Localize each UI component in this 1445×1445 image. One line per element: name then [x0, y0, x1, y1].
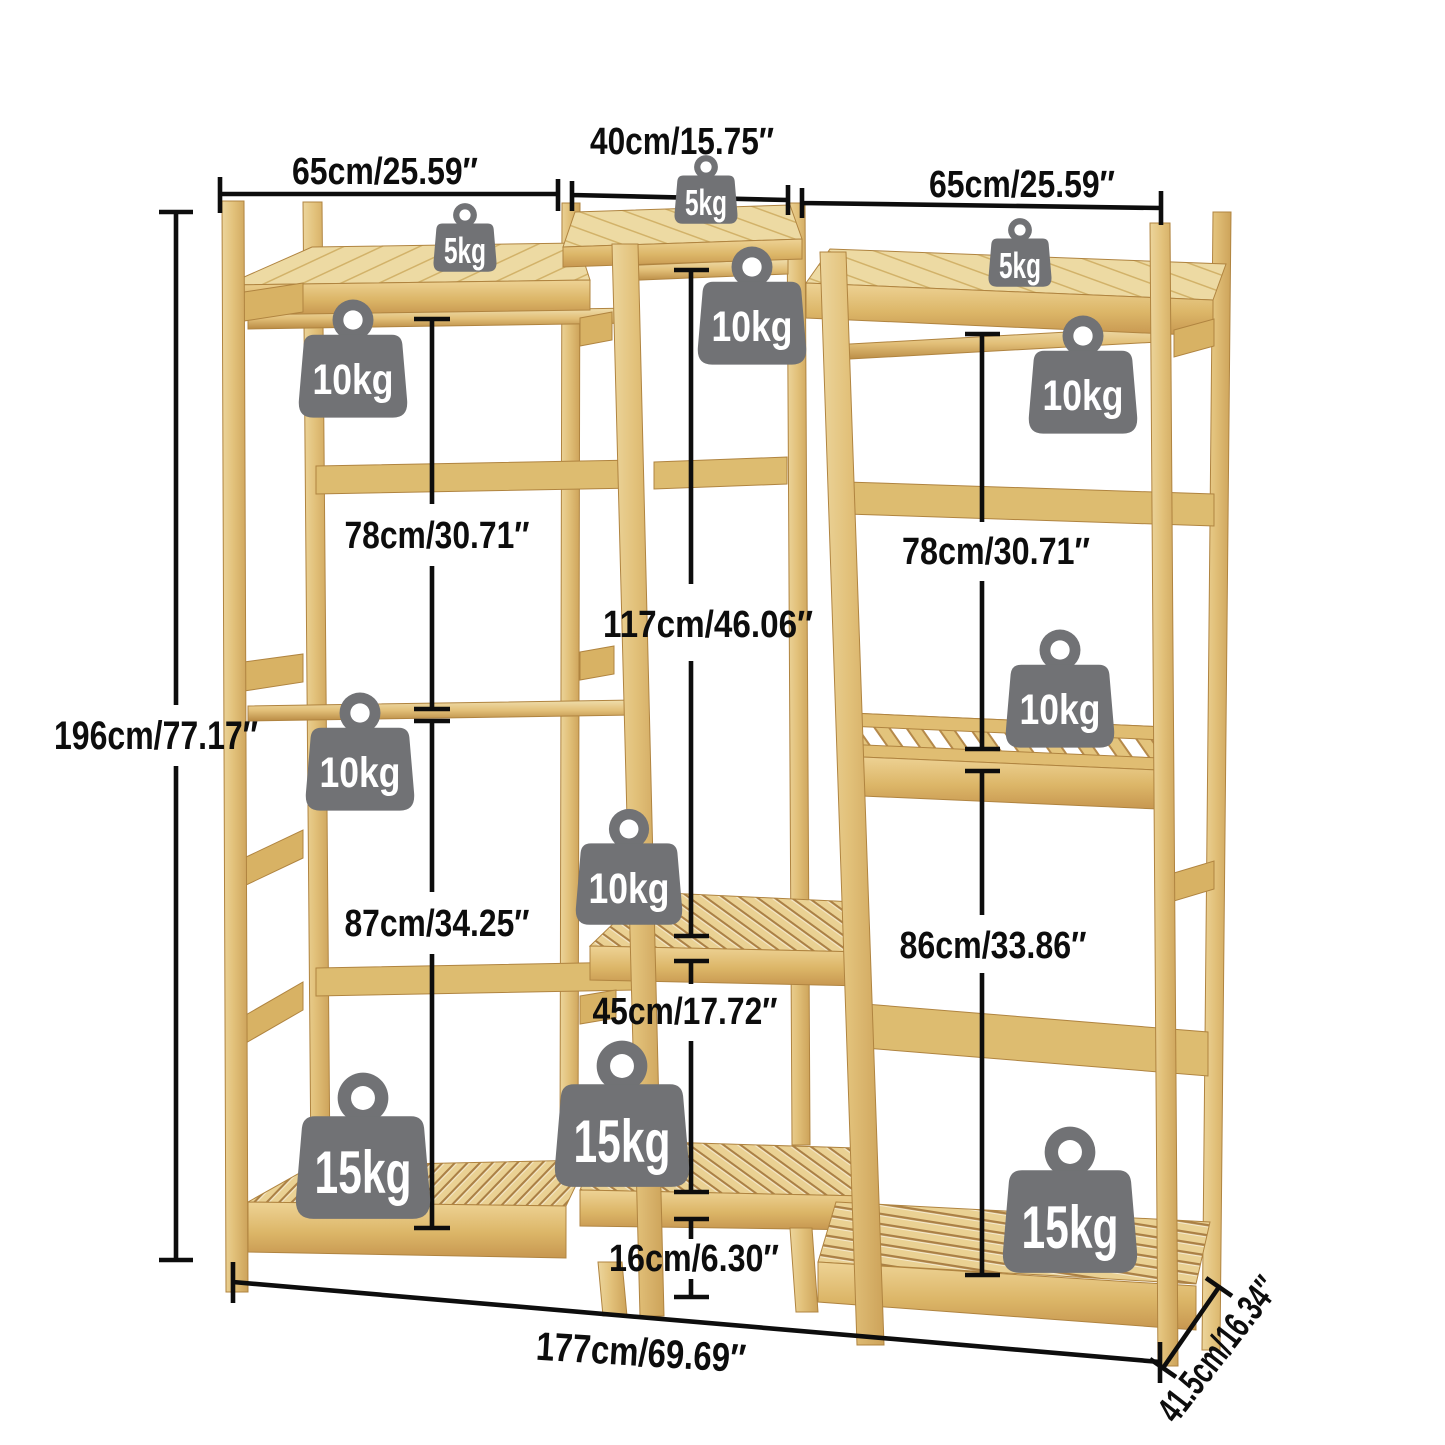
- svg-text:65cm/25.59″: 65cm/25.59″: [292, 151, 478, 193]
- svg-text:87cm/34.25″: 87cm/34.25″: [345, 903, 530, 945]
- svg-text:15kg: 15kg: [1022, 1194, 1119, 1261]
- svg-text:10kg: 10kg: [589, 865, 670, 913]
- svg-text:10kg: 10kg: [712, 303, 793, 351]
- svg-text:65cm/25.59″: 65cm/25.59″: [929, 164, 1115, 206]
- svg-text:16cm/6.30″: 16cm/6.30″: [609, 1238, 779, 1280]
- svg-text:78cm/30.71″: 78cm/30.71″: [345, 515, 530, 557]
- svg-text:5kg: 5kg: [999, 245, 1041, 286]
- svg-text:45cm/17.72″: 45cm/17.72″: [593, 991, 778, 1033]
- svg-text:10kg: 10kg: [1043, 372, 1124, 420]
- svg-text:5kg: 5kg: [685, 182, 727, 223]
- svg-text:5kg: 5kg: [444, 230, 486, 271]
- svg-text:10kg: 10kg: [320, 749, 401, 797]
- svg-text:117cm/46.06″: 117cm/46.06″: [603, 604, 813, 646]
- svg-text:40cm/15.75″: 40cm/15.75″: [590, 121, 774, 163]
- svg-text:196cm/77.17″: 196cm/77.17″: [54, 714, 258, 758]
- svg-text:10kg: 10kg: [1020, 686, 1101, 734]
- svg-text:15kg: 15kg: [315, 1139, 412, 1206]
- svg-text:78cm/30.71″: 78cm/30.71″: [902, 531, 1090, 573]
- svg-text:86cm/33.86″: 86cm/33.86″: [900, 925, 1087, 967]
- svg-text:15kg: 15kg: [574, 1108, 671, 1175]
- svg-text:10kg: 10kg: [313, 356, 394, 404]
